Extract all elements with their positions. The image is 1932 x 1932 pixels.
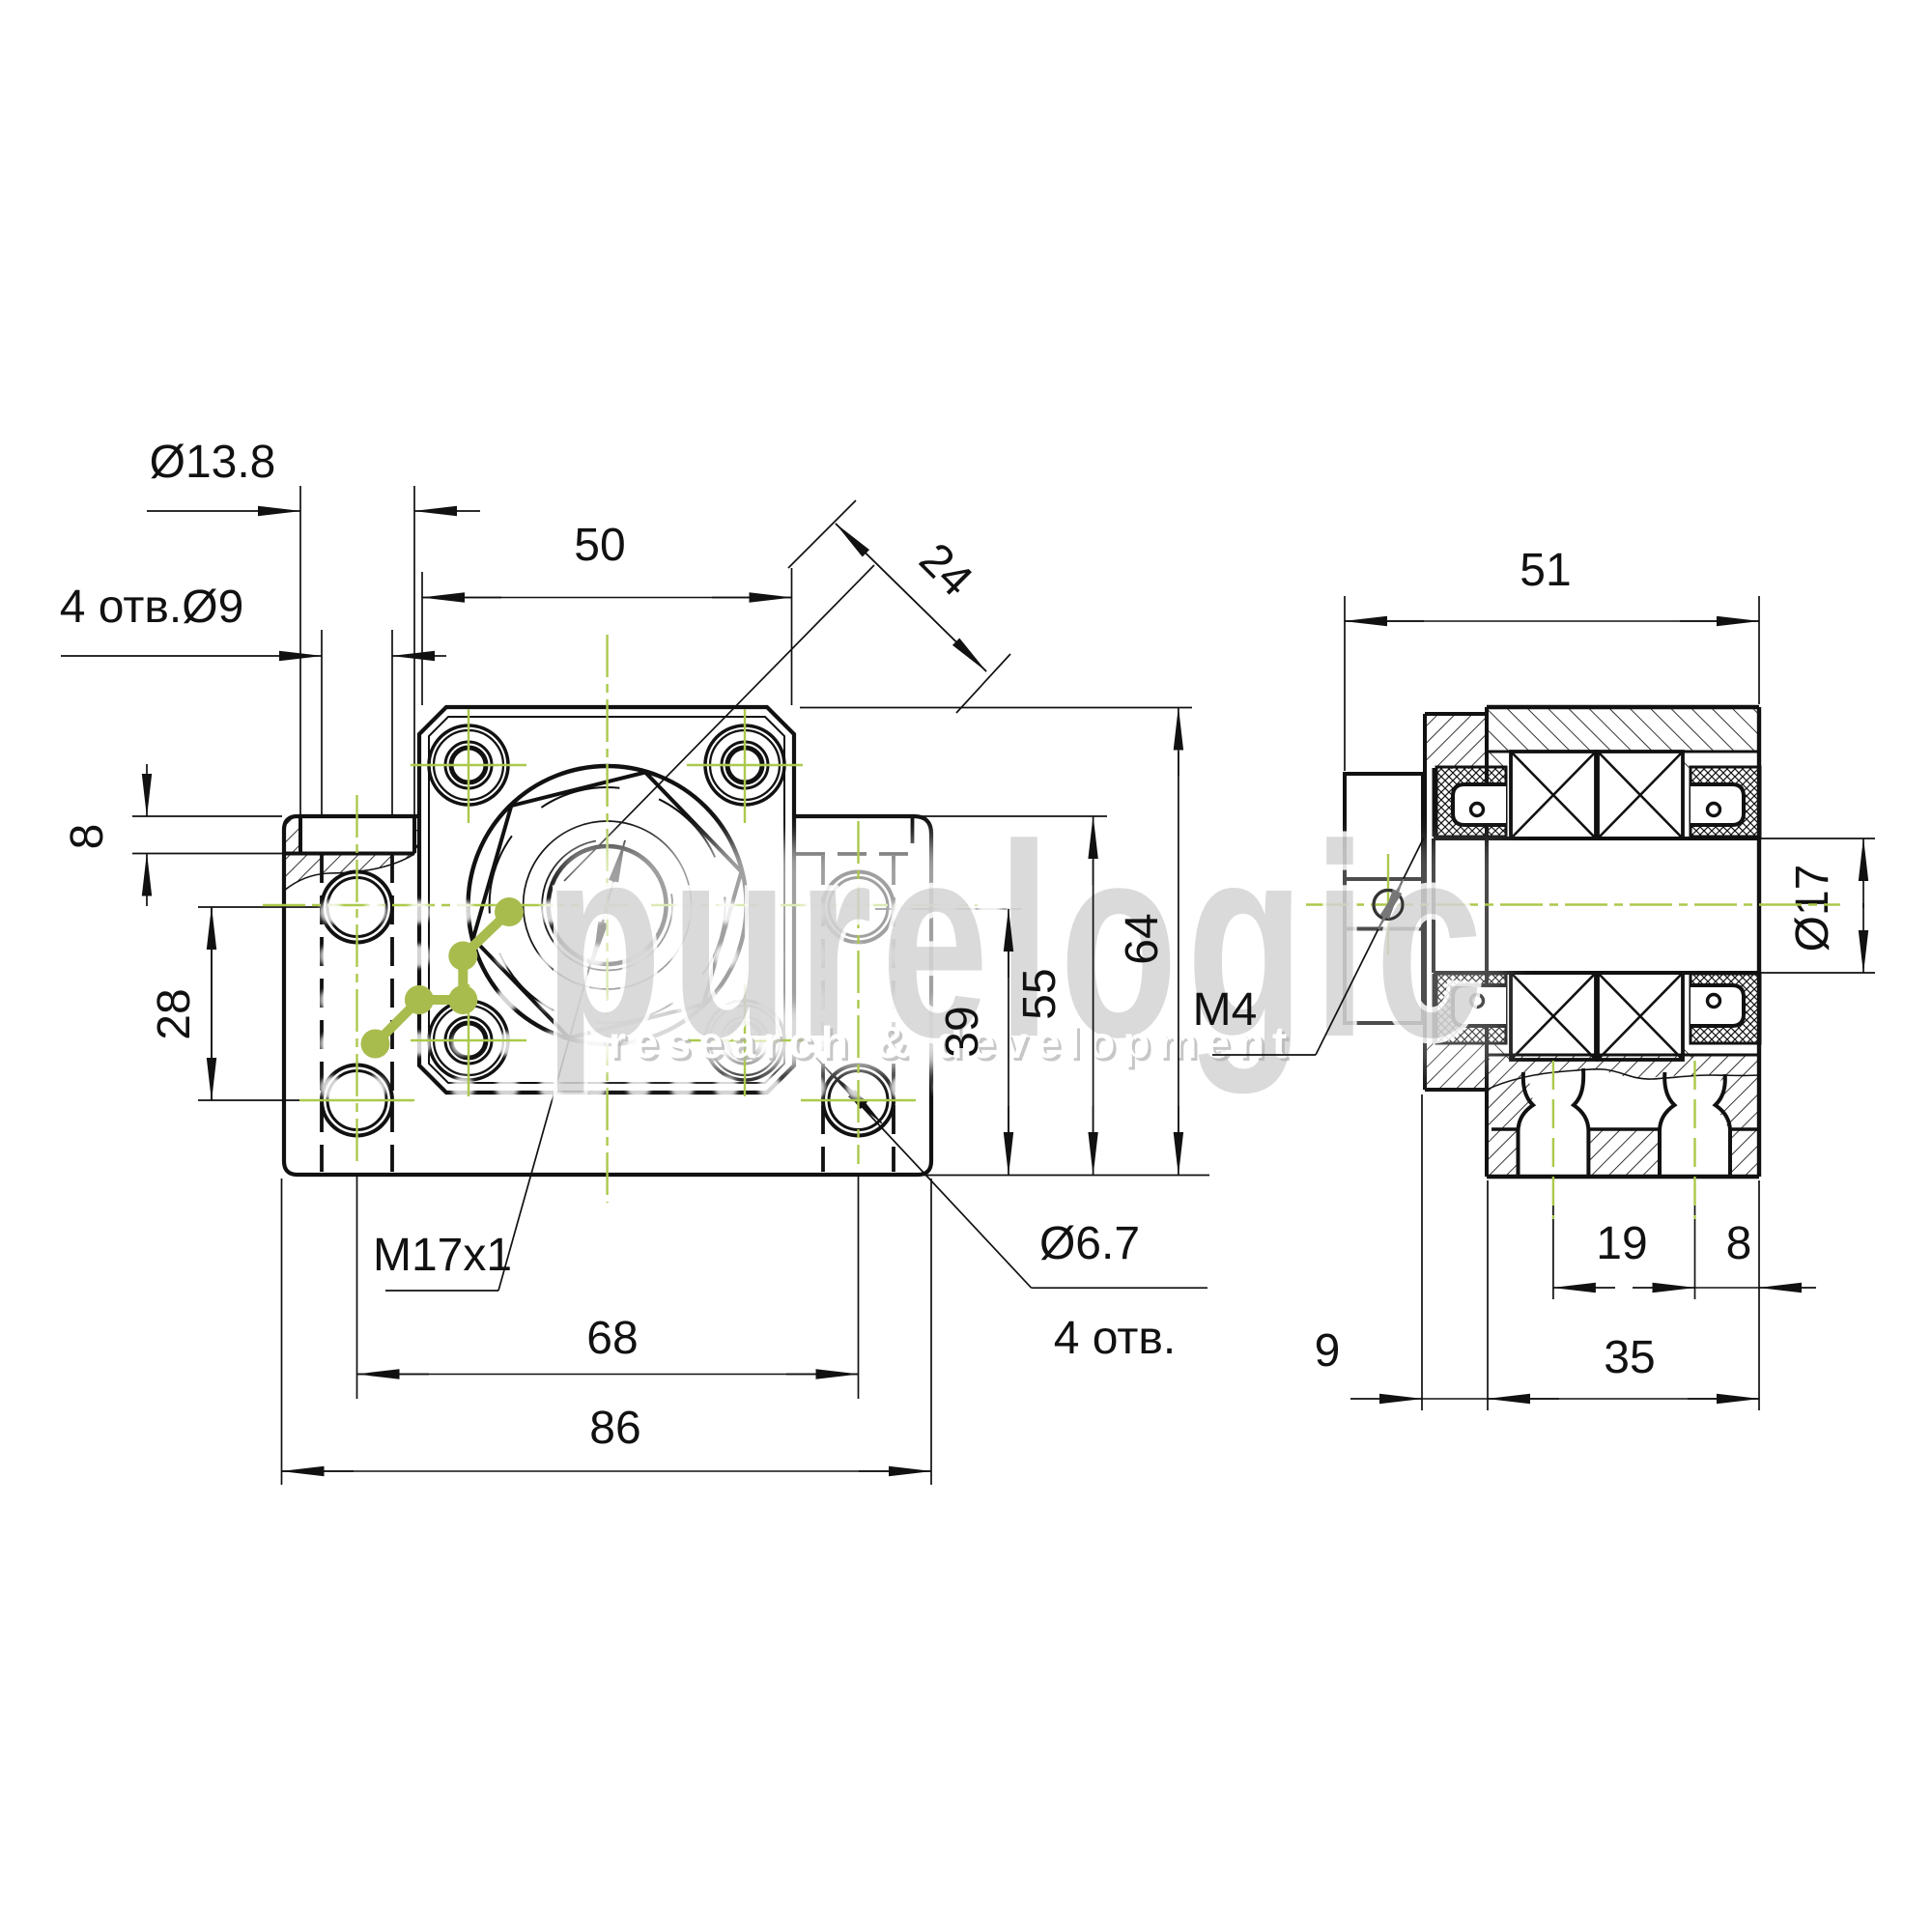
svg-text:Ø17: Ø17: [1787, 865, 1838, 952]
svg-text:39: 39: [937, 1006, 988, 1057]
svg-text:50: 50: [574, 520, 625, 571]
svg-text:8: 8: [62, 824, 113, 850]
svg-text:Ø13.8: Ø13.8: [150, 437, 276, 488]
svg-text:Ø6.7: Ø6.7: [1039, 1218, 1140, 1269]
svg-text:51: 51: [1520, 545, 1571, 596]
svg-text:4 отв.Ø9: 4 отв.Ø9: [60, 582, 244, 633]
svg-text:68: 68: [586, 1313, 638, 1364]
svg-text:4 отв.: 4 отв.: [1054, 1313, 1177, 1364]
svg-text:86: 86: [589, 1403, 640, 1454]
svg-text:8: 8: [1726, 1218, 1752, 1269]
svg-text:M17x1: M17x1: [373, 1230, 512, 1281]
svg-text:55: 55: [1014, 968, 1065, 1019]
svg-text:64: 64: [1117, 913, 1168, 964]
svg-text:28: 28: [149, 988, 200, 1039]
svg-text:9: 9: [1315, 1325, 1341, 1377]
svg-text:M4: M4: [1193, 984, 1258, 1036]
svg-text:35: 35: [1604, 1332, 1655, 1383]
svg-text:19: 19: [1596, 1218, 1647, 1269]
